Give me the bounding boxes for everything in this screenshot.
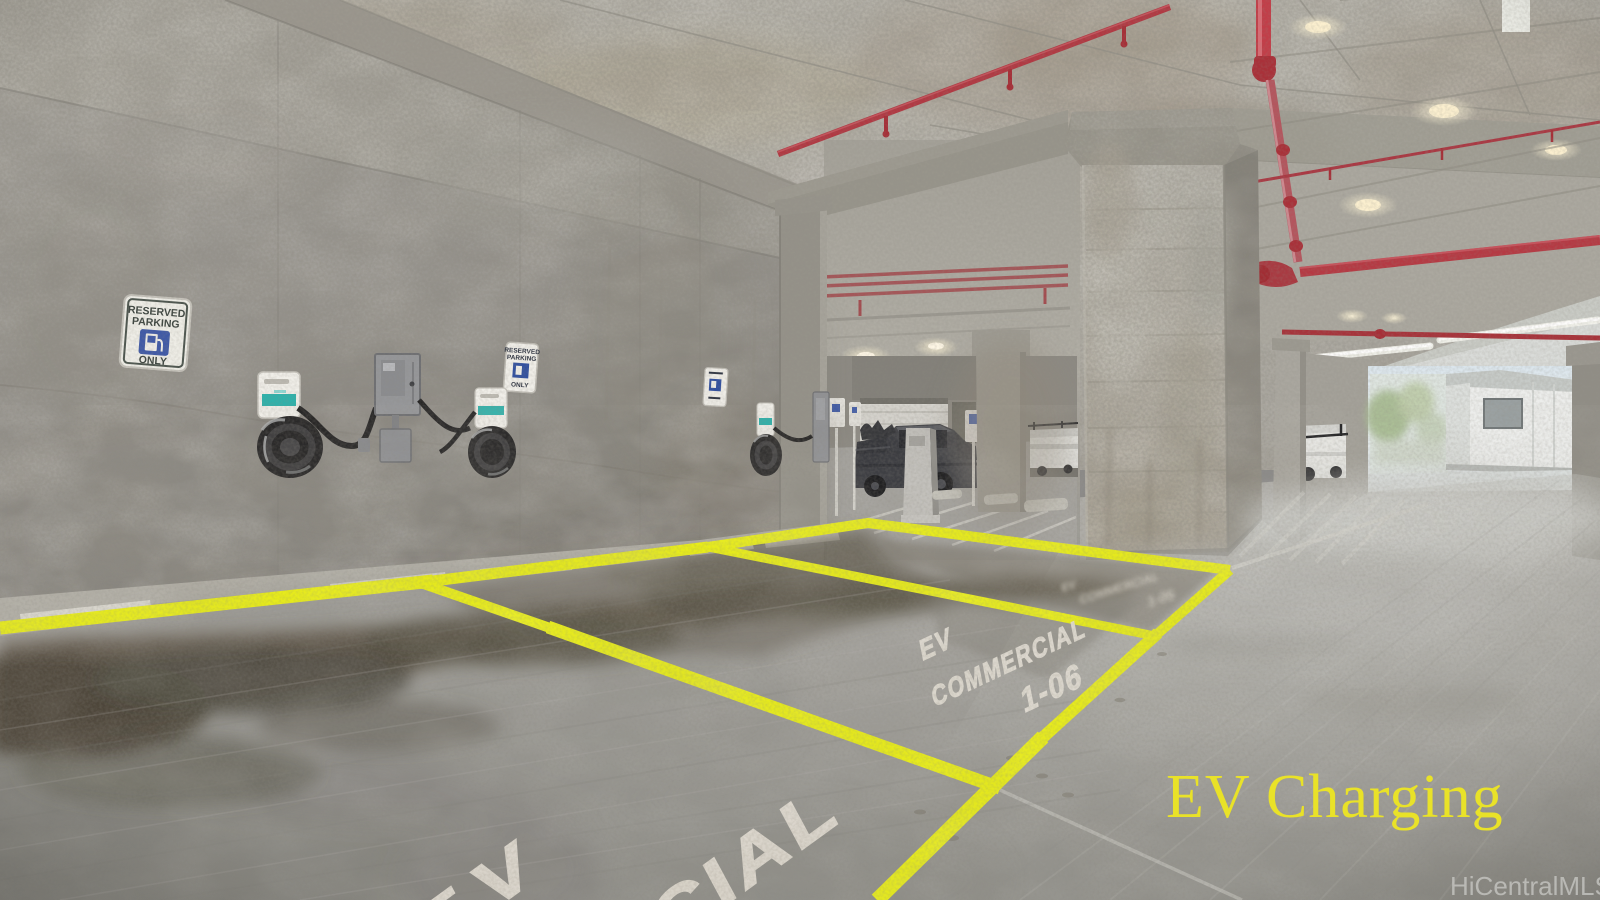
svg-text:EV Charging: EV Charging <box>1166 763 1504 831</box>
svg-text:HiCentralMLS: HiCentralMLS <box>1450 871 1600 900</box>
